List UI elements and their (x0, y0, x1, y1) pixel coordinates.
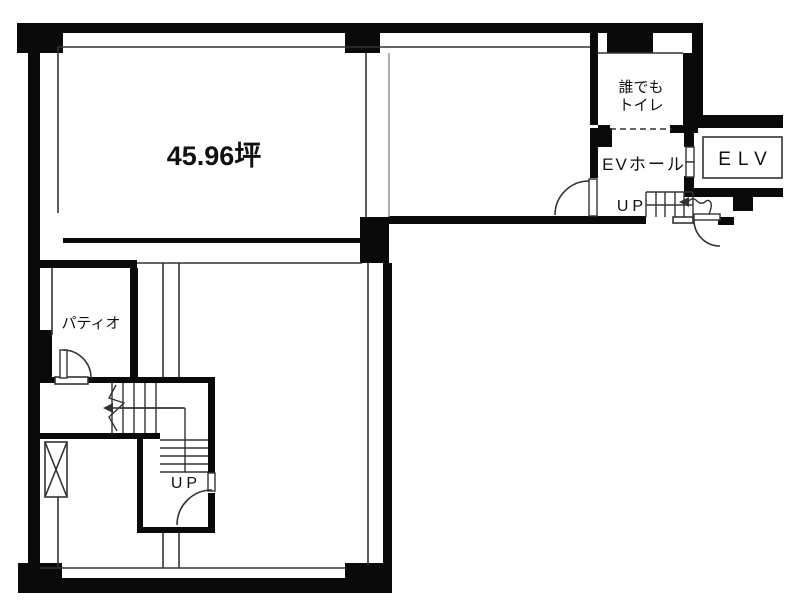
wall-toilet-right (683, 53, 695, 128)
wall-elv-step-block (733, 197, 753, 211)
column-bottom-right (345, 563, 392, 593)
wall-stair-left-lower (137, 439, 143, 533)
floor-plan-canvas: 45.96坪 誰でも トイレ EVホール ELV UP パティオ UP (0, 0, 800, 602)
wall-toilet-left (590, 33, 598, 125)
wall-patio-top (37, 260, 137, 268)
patio-label: パティオ (61, 315, 120, 332)
floor-plan-drawing: 45.96坪 誰でも トイレ EVホール ELV UP パティオ UP (0, 0, 800, 602)
ev-hall-label: EVホール (602, 155, 686, 174)
stairwell-door-jamb (208, 473, 215, 491)
column-mid (360, 217, 389, 263)
wall-evhall-left (590, 147, 598, 178)
wall-corridor-bottom (388, 216, 646, 224)
wall-stair-mid (40, 433, 160, 439)
stairwell-door-swing (177, 490, 212, 525)
wall-elv-shaft-upper-stub (684, 128, 694, 147)
accessible-toilet-label-line1: 誰でも (618, 79, 663, 96)
accessible-toilet-label-line2: トイレ (618, 97, 663, 114)
column-top-mid (345, 23, 380, 53)
wall-patio-left-lower (40, 330, 52, 378)
wall-stair-right-a (208, 383, 215, 473)
wall-stair-top-b (88, 377, 215, 383)
wall-block-above-toilet (607, 33, 653, 53)
labels: 45.96坪 誰でも トイレ EVホール ELV UP パティオ UP (61, 79, 773, 492)
wall-stair-bottom (137, 527, 215, 533)
elevator-door-panel (686, 162, 694, 177)
walls (17, 23, 783, 593)
evhall-door-leaf (589, 179, 597, 216)
up-label-elevator-stairs: UP (617, 198, 647, 215)
stair-landing-edge (673, 217, 693, 223)
wall-patio-right (130, 268, 138, 378)
elevator-door-panel (686, 147, 694, 162)
exterior-door-leaf (694, 214, 720, 220)
patio-door-leaf (60, 350, 67, 378)
evhall-door-swing (555, 181, 589, 215)
stairs-main (103, 383, 208, 472)
wall-left (28, 33, 40, 593)
wall-elv-bottom (684, 188, 783, 197)
shaft-symbol (45, 442, 67, 497)
wall-evhall-notch (590, 128, 612, 147)
wall-upper-room-bottom (63, 238, 360, 243)
wall-elv-top (698, 115, 783, 128)
elevator-label: ELV (718, 149, 774, 170)
area-label: 45.96坪 (167, 141, 262, 171)
up-label-main-stairs: UP (171, 475, 201, 492)
wall-bottom (20, 578, 392, 593)
wall-lower-right (383, 263, 392, 563)
stair-arrowhead (103, 403, 113, 413)
exterior-door-swing (694, 220, 720, 246)
